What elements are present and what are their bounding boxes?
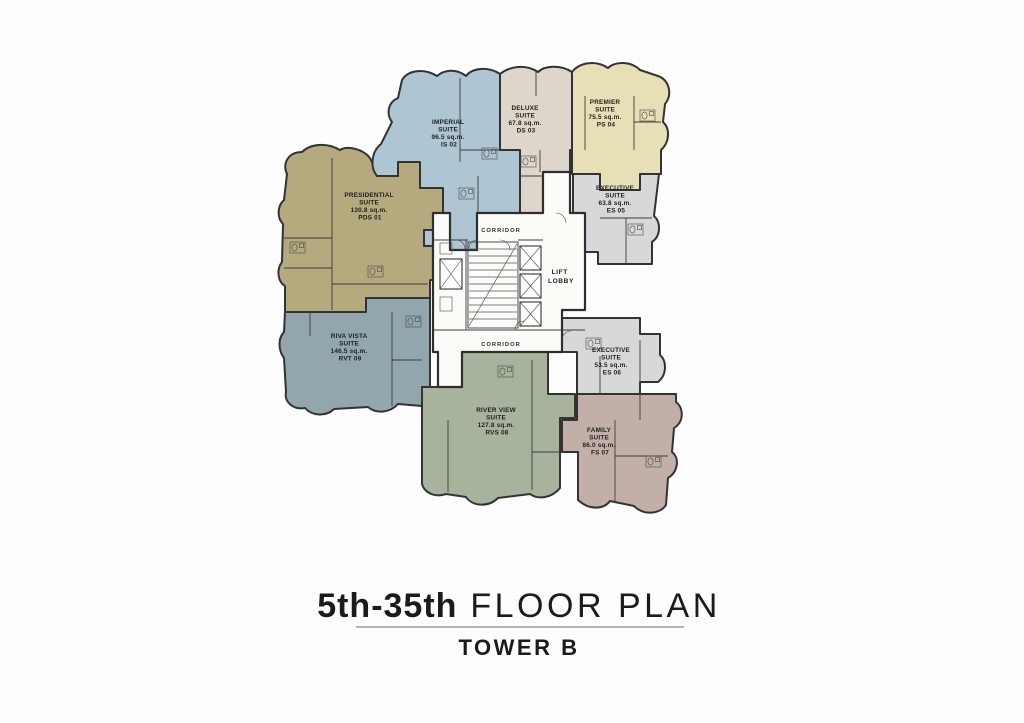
tower-subtitle: TOWER B	[459, 635, 580, 660]
label-corridor-bottom: CORRIDOR	[481, 342, 521, 348]
title-block: 5th-35th FLOOR PLAN TOWER B	[317, 587, 721, 660]
unit-premier-suite	[572, 63, 669, 190]
floor-plan-page: PRESIDENTIAL SUITE 130.8 sq.m. PDS 01 IM…	[0, 0, 1024, 723]
floor-plan-canvas: PRESIDENTIAL SUITE 130.8 sq.m. PDS 01 IM…	[0, 0, 1024, 723]
unit-family-suite	[562, 394, 682, 513]
page-title: 5th-35th FLOOR PLAN	[317, 587, 721, 625]
label-corridor-top: CORRIDOR	[481, 228, 521, 234]
